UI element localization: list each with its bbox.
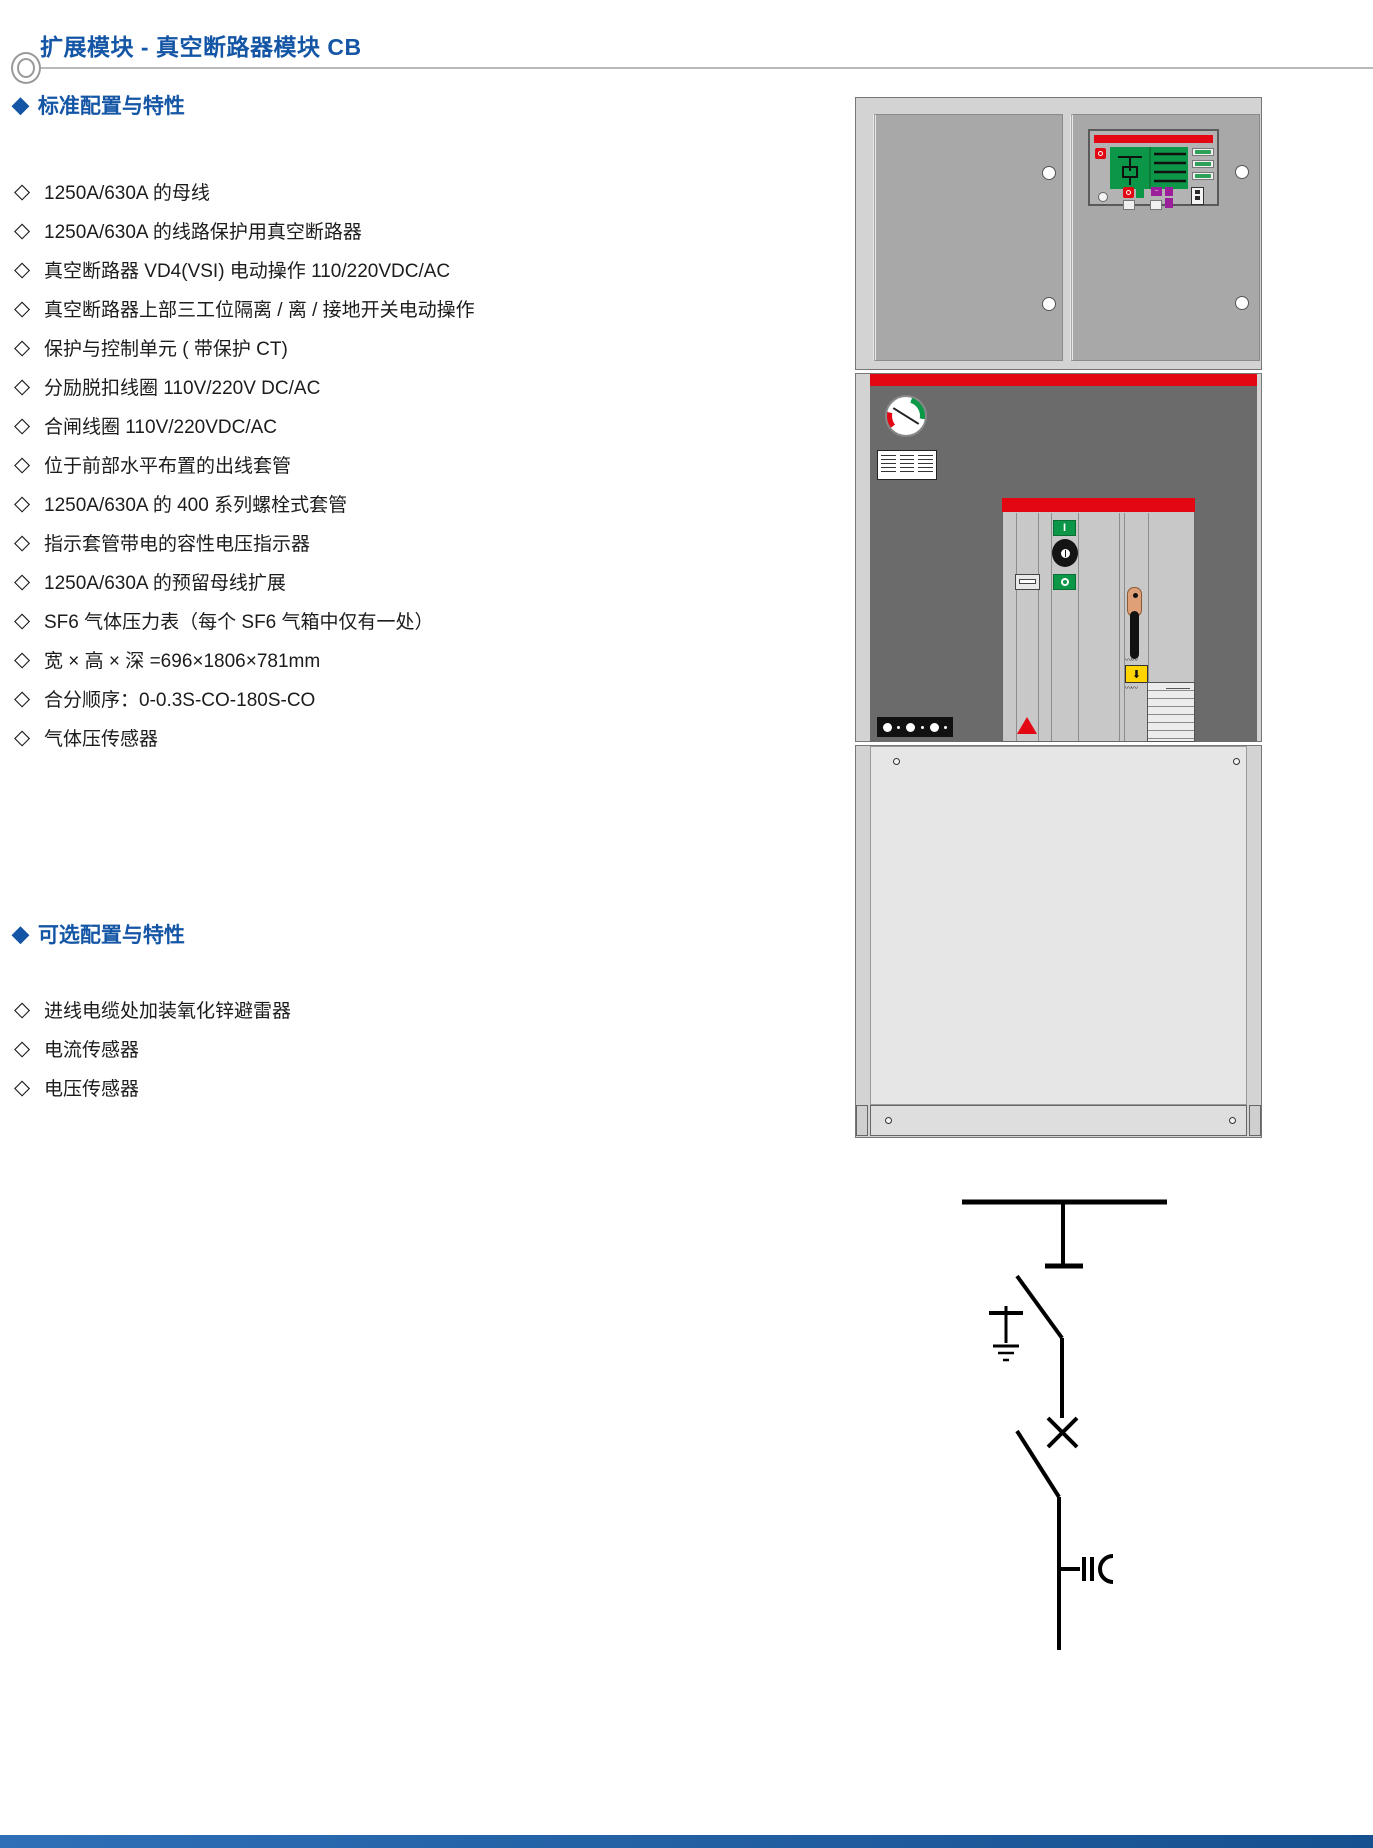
purple-button bbox=[1165, 198, 1173, 208]
list-item: ◇保护与控制单元 ( 带保护 CT) bbox=[14, 328, 475, 367]
cabinet-plinth bbox=[870, 1105, 1247, 1136]
list-item-text: 1250A/630A 的母线 bbox=[44, 178, 210, 205]
green-tag bbox=[1136, 188, 1144, 198]
diamond-outline-icon: ◇ bbox=[14, 608, 44, 633]
footer-bar bbox=[0, 1835, 1373, 1848]
page-title: 扩展模块 - 真空断路器模块 CB bbox=[40, 28, 362, 62]
list-item: ◇合闸线圈 110V/220VDC/AC bbox=[14, 406, 475, 445]
list-item: ◇真空断路器上部三工位隔离 / 离 / 接地开关电动操作 bbox=[14, 289, 475, 328]
section-heading-text: 可选配置与特性 bbox=[38, 919, 185, 949]
spring-charge-label: ⬇ bbox=[1125, 665, 1148, 683]
list-item: ◇真空断路器 VD4(VSI) 电动操作 110/220VDC/AC bbox=[14, 250, 475, 289]
standard-feature-list: ◇1250A/630A 的母线 ◇1250A/630A 的线路保护用真空断路器 … bbox=[14, 172, 475, 757]
plinth-rail bbox=[856, 1105, 868, 1136]
disconnector-blade bbox=[1017, 1276, 1062, 1338]
diamond-outline-icon: ◇ bbox=[14, 296, 44, 321]
led-indicator-bar bbox=[1192, 148, 1214, 156]
section-heading-optional: ◆ 可选配置与特性 bbox=[12, 919, 185, 949]
diamond-outline-icon: ◇ bbox=[14, 491, 44, 516]
diamond-outline-icon: ◇ bbox=[14, 725, 44, 750]
list-item: ◇宽 × 高 × 深 =696×1806×781mm bbox=[14, 640, 475, 679]
panel-seam bbox=[1124, 513, 1125, 741]
list-item-text: 合闸线圈 110V/220VDC/AC bbox=[44, 412, 277, 439]
diamond-outline-icon: ◇ bbox=[14, 335, 44, 360]
list-item-text: 宽 × 高 × 深 =696×1806×781mm bbox=[44, 646, 320, 673]
cabinet-top-box: – bbox=[855, 97, 1262, 370]
door-knob bbox=[1235, 296, 1249, 310]
list-item-text: 气体压传感器 bbox=[44, 724, 158, 751]
screw-icon bbox=[1229, 1117, 1236, 1124]
panel-seam bbox=[1119, 513, 1120, 741]
panel-seam bbox=[1016, 513, 1017, 741]
list-item-text: 电压传感器 bbox=[44, 1074, 139, 1101]
red-indicator-button bbox=[1123, 187, 1134, 198]
white-key bbox=[1150, 200, 1162, 210]
cable-compartment-cover bbox=[870, 746, 1247, 1105]
open-button bbox=[1053, 574, 1076, 590]
cabinet-mid-frame: I 〰〰 ⬇ 〰〰 bbox=[855, 373, 1262, 742]
list-item-text: 真空断路器 VD4(VSI) 电动操作 110/220VDC/AC bbox=[44, 256, 450, 283]
door-knob bbox=[1042, 297, 1056, 311]
title-divider bbox=[22, 67, 1373, 69]
mini-keypad bbox=[1191, 187, 1204, 205]
white-key bbox=[1123, 200, 1135, 210]
spring-symbol: 〰〰 bbox=[1125, 655, 1137, 665]
list-item: ◇进线电缆处加装氧化锌避雷器 bbox=[14, 990, 291, 1029]
diamond-outline-icon: ◇ bbox=[14, 1075, 44, 1100]
diamond-outline-icon: ◇ bbox=[14, 686, 44, 711]
spring-symbol: 〰〰 bbox=[1125, 683, 1137, 693]
section-heading-text: 标准配置与特性 bbox=[38, 90, 185, 120]
breaker-red-stripe bbox=[1002, 498, 1195, 512]
list-item-text: 1250A/630A 的 400 系列螺栓式套管 bbox=[44, 490, 347, 517]
screw-icon bbox=[885, 1117, 892, 1124]
led-indicator-bar bbox=[1192, 160, 1214, 168]
list-item-text: 真空断路器上部三工位隔离 / 离 / 接地开关电动操作 bbox=[44, 295, 475, 322]
vent-louver-panel bbox=[1147, 682, 1195, 742]
counter-window bbox=[1015, 574, 1040, 590]
mimic-diagram-graphic bbox=[1110, 147, 1188, 189]
panel-seam bbox=[1038, 513, 1039, 741]
list-item: ◇电压传感器 bbox=[14, 1068, 291, 1107]
list-item-text: 保护与控制单元 ( 带保护 CT) bbox=[44, 334, 288, 361]
vd4-breaker-panel: I 〰〰 ⬇ 〰〰 bbox=[1002, 498, 1195, 742]
list-item: ◇电流传感器 bbox=[14, 1029, 291, 1068]
diamond-outline-icon: ◇ bbox=[14, 647, 44, 672]
optional-feature-list: ◇进线电缆处加装氧化锌避雷器 ◇电流传感器 ◇电压传感器 bbox=[14, 990, 291, 1107]
list-item: ◇指示套管带电的容性电压指示器 bbox=[14, 523, 475, 562]
list-item: ◇1250A/630A 的母线 bbox=[14, 172, 475, 211]
cabinet-top-door-left bbox=[873, 114, 1063, 361]
ring-icon-inner bbox=[17, 58, 35, 78]
warning-triangle-icon bbox=[1017, 717, 1037, 734]
panel-seam bbox=[1078, 513, 1079, 741]
ring-icon bbox=[11, 52, 41, 84]
diamond-outline-icon: ◇ bbox=[14, 997, 44, 1022]
round-button bbox=[1098, 192, 1108, 202]
led-indicator-bar bbox=[1192, 172, 1214, 180]
list-item: ◇位于前部水平布置的出线套管 bbox=[14, 445, 475, 484]
purple-button: – bbox=[1151, 187, 1162, 196]
mimic-display bbox=[1110, 147, 1188, 189]
diamond-outline-icon: ◇ bbox=[14, 1036, 44, 1061]
screw-icon bbox=[1233, 758, 1240, 765]
diamond-outline-icon: ◇ bbox=[14, 530, 44, 555]
screw-icon bbox=[893, 758, 900, 765]
list-item-text: 1250A/630A 的线路保护用真空断路器 bbox=[44, 217, 362, 244]
door-knob bbox=[1042, 166, 1056, 180]
list-item-text: 位于前部水平布置的出线套管 bbox=[44, 451, 291, 478]
list-item-text: SF6 气体压力表（每个 SF6 气箱中仅有一处） bbox=[44, 607, 434, 634]
section-heading-standard: ◆ 标准配置与特性 bbox=[12, 90, 185, 120]
list-item-text: 1250A/630A 的预留母线扩展 bbox=[44, 568, 286, 595]
purple-button bbox=[1165, 187, 1173, 196]
red-indicator-button bbox=[1095, 148, 1106, 159]
plinth-rail bbox=[1249, 1105, 1261, 1136]
rating-nameplate bbox=[877, 450, 937, 480]
charging-handle-bar bbox=[1130, 611, 1139, 659]
door-knob bbox=[1235, 165, 1249, 179]
catalog-page: 扩展模块 - 真空断路器模块 CB ◆ 标准配置与特性 ◇1250A/630A … bbox=[0, 0, 1373, 1848]
control-unit-red-stripe bbox=[1094, 135, 1213, 143]
list-item: ◇SF6 气体压力表（每个 SF6 气箱中仅有一处） bbox=[14, 601, 475, 640]
diamond-outline-icon: ◇ bbox=[14, 452, 44, 477]
operation-selector-knob bbox=[1052, 539, 1078, 567]
diamond-outline-icon: ◇ bbox=[14, 218, 44, 243]
list-item-text: 合分顺序：0-0.3S-CO-180S-CO bbox=[44, 685, 315, 712]
list-item-text: 进线电缆处加装氧化锌避雷器 bbox=[44, 996, 291, 1023]
protection-control-unit: – bbox=[1088, 129, 1219, 206]
diamond-filled-icon: ◆ bbox=[12, 921, 29, 947]
sf6-pressure-gauge bbox=[885, 395, 927, 437]
list-item-text: 电流传感器 bbox=[44, 1035, 139, 1062]
list-item: ◇气体压传感器 bbox=[14, 718, 475, 757]
cable-termination-arc bbox=[1100, 1556, 1113, 1582]
cabinet-bottom-frame bbox=[855, 745, 1262, 1138]
cabinet-operating-panel: I 〰〰 ⬇ 〰〰 bbox=[870, 386, 1257, 742]
diamond-outline-icon: ◇ bbox=[14, 179, 44, 204]
list-item-text: 分励脱扣线圈 110V/220V DC/AC bbox=[44, 373, 320, 400]
voltage-indicator-strip bbox=[877, 717, 953, 737]
diamond-outline-icon: ◇ bbox=[14, 374, 44, 399]
diamond-outline-icon: ◇ bbox=[14, 569, 44, 594]
list-item: ◇1250A/630A 的预留母线扩展 bbox=[14, 562, 475, 601]
list-item: ◇1250A/630A 的线路保护用真空断路器 bbox=[14, 211, 475, 250]
switchgear-cabinet-figure: – bbox=[855, 97, 1262, 1138]
diamond-outline-icon: ◇ bbox=[14, 257, 44, 282]
list-item: ◇合分顺序：0-0.3S-CO-180S-CO bbox=[14, 679, 475, 718]
list-item: ◇1250A/630A 的 400 系列螺栓式套管 bbox=[14, 484, 475, 523]
single-line-diagram bbox=[950, 1190, 1195, 1660]
cabinet-red-stripe bbox=[870, 374, 1257, 386]
single-line-diagram-graphic bbox=[950, 1190, 1195, 1660]
close-button: I bbox=[1053, 520, 1076, 536]
list-item-text: 指示套管带电的容性电压指示器 bbox=[44, 529, 310, 556]
diamond-outline-icon: ◇ bbox=[14, 413, 44, 438]
diamond-filled-icon: ◆ bbox=[12, 92, 29, 118]
list-item: ◇分励脱扣线圈 110V/220V DC/AC bbox=[14, 367, 475, 406]
